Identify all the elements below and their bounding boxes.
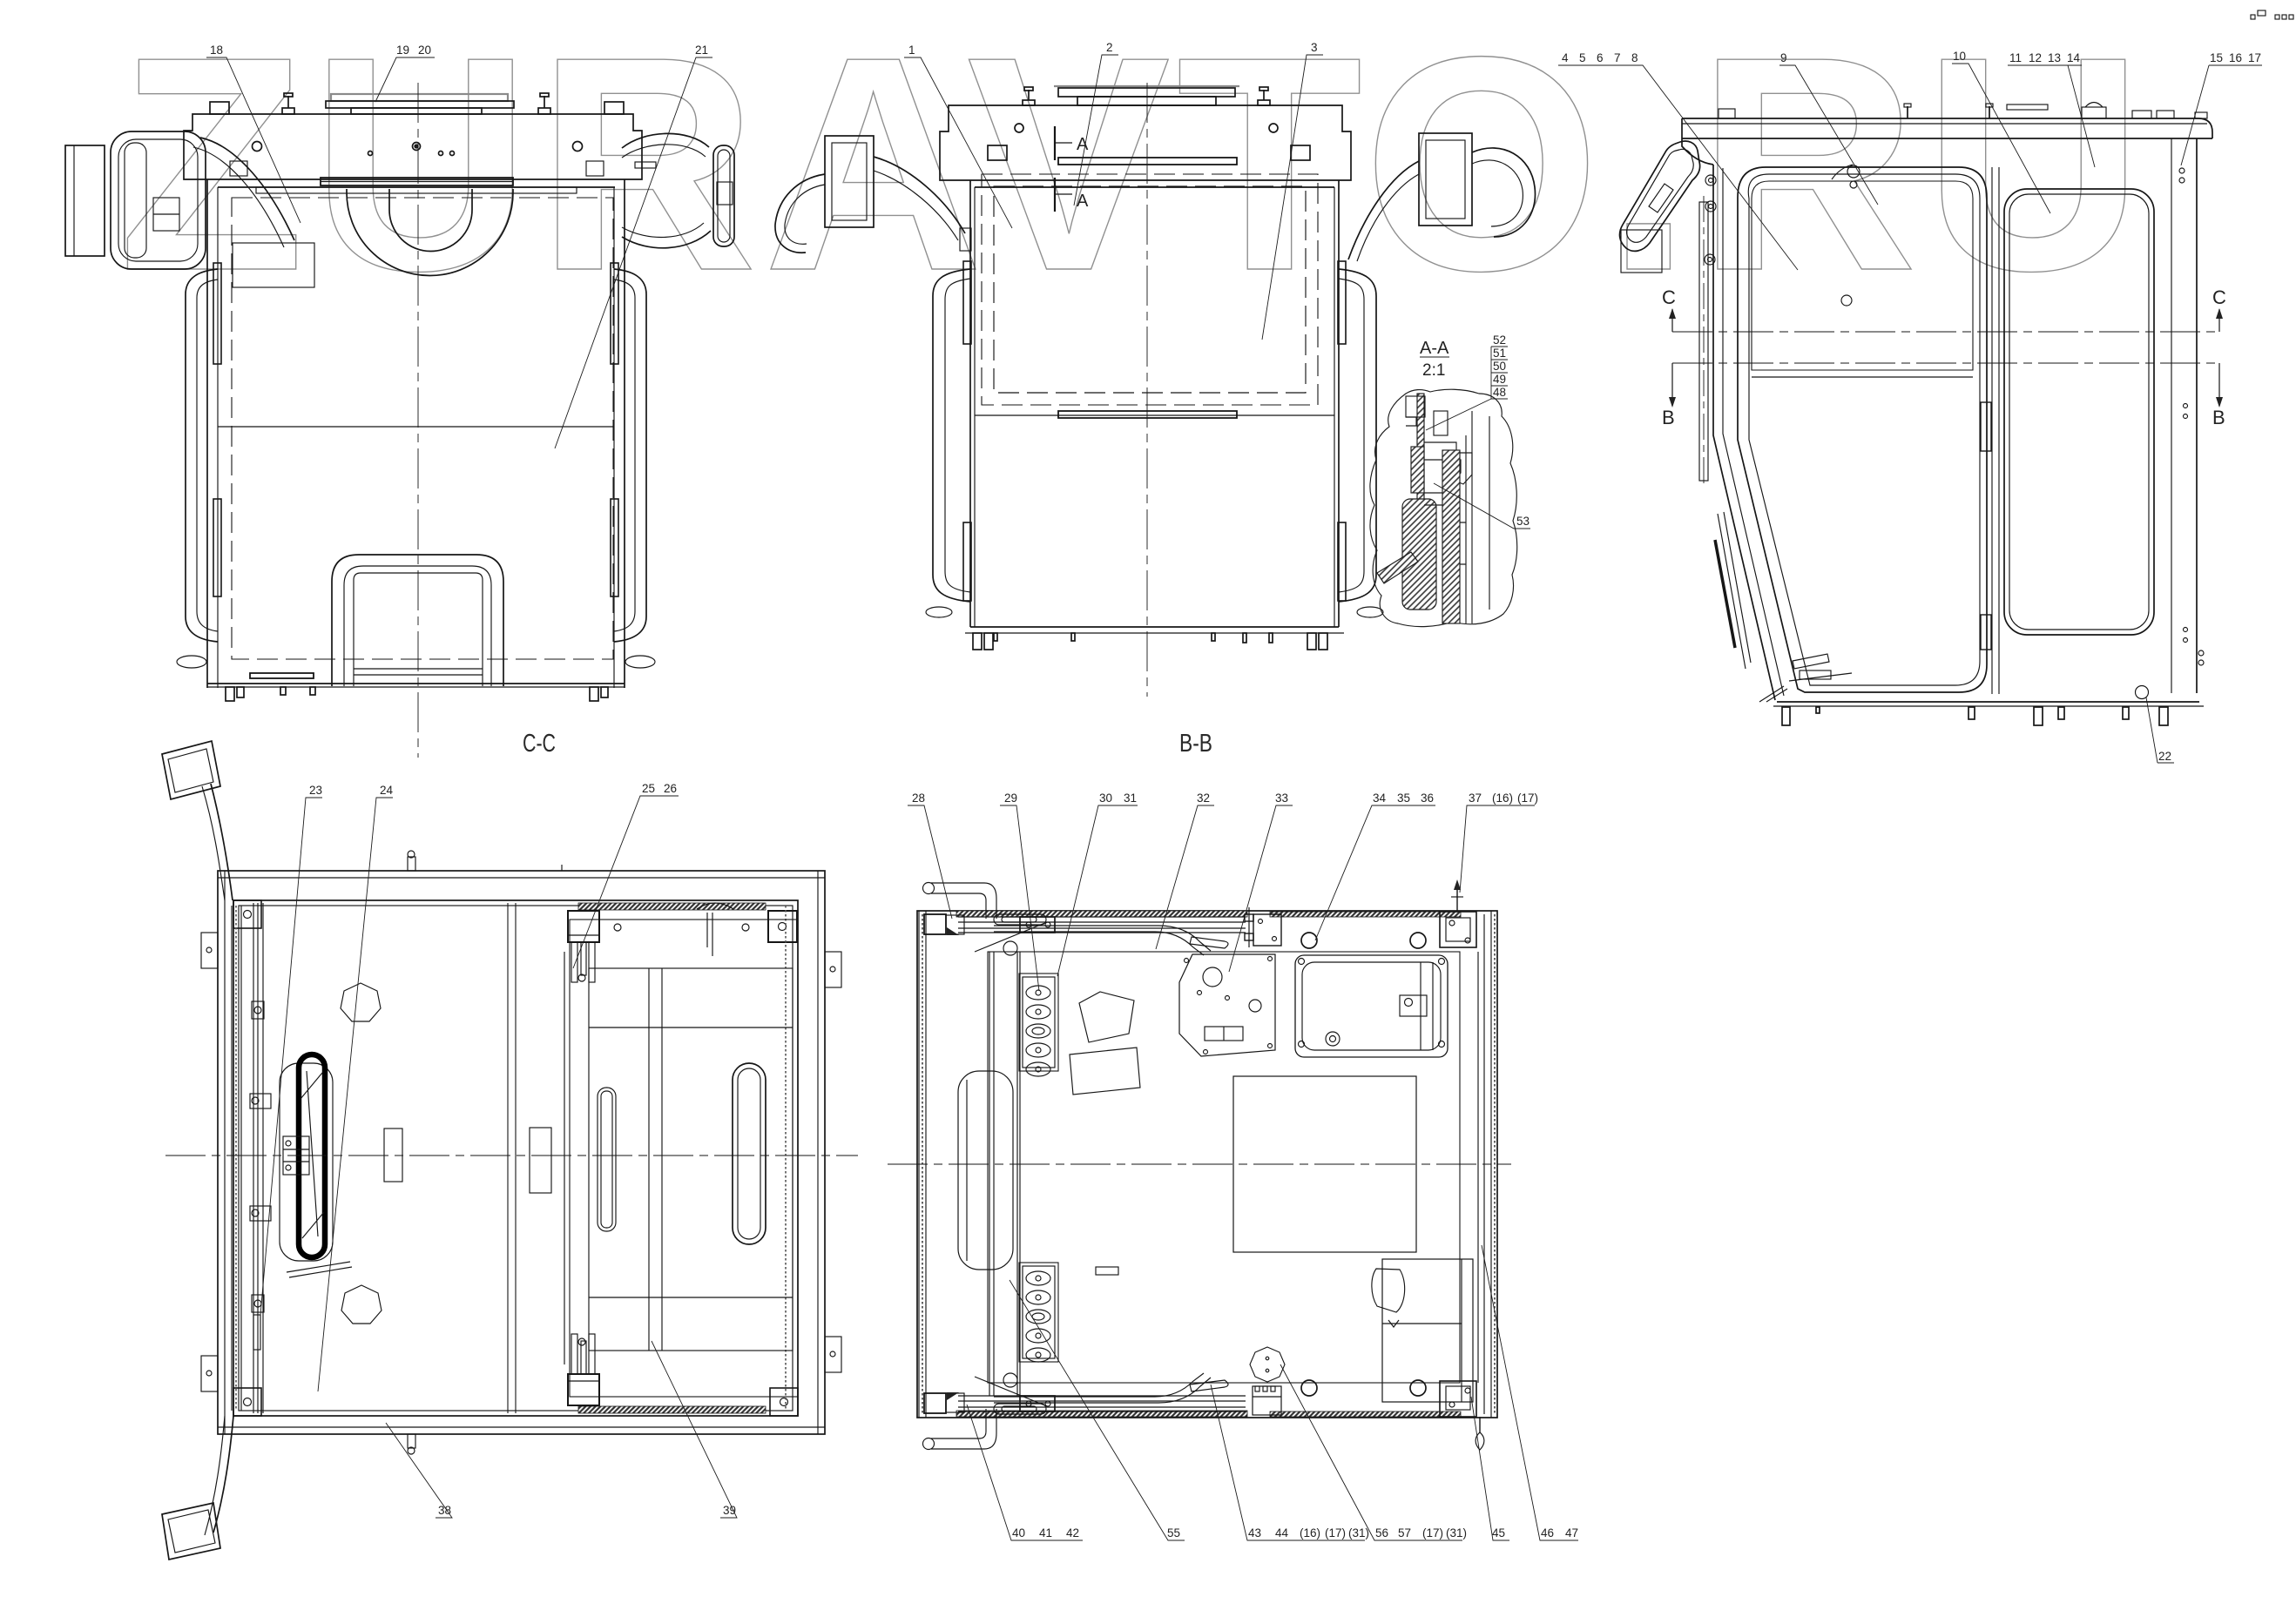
svg-text:(16): (16) — [1492, 792, 1513, 805]
svg-text:33: 33 — [1275, 792, 1288, 805]
svg-text:5: 5 — [1579, 51, 1586, 64]
svg-text:36: 36 — [1421, 792, 1434, 805]
svg-text:4: 4 — [1562, 51, 1569, 64]
svg-text:17: 17 — [2248, 51, 2261, 64]
svg-text:9: 9 — [1780, 51, 1787, 64]
svg-text:20: 20 — [418, 44, 431, 57]
svg-text:B: B — [1662, 407, 1675, 428]
svg-text:8: 8 — [1631, 51, 1638, 64]
svg-text:43: 43 — [1248, 1526, 1261, 1540]
svg-text:53: 53 — [1516, 515, 1530, 528]
svg-text:A: A — [1077, 135, 1089, 154]
svg-text:2: 2 — [1106, 41, 1113, 54]
svg-text:56: 56 — [1375, 1526, 1388, 1540]
svg-text:44: 44 — [1275, 1526, 1289, 1540]
svg-text:50: 50 — [1493, 360, 1506, 373]
svg-text:15: 15 — [2210, 51, 2223, 64]
svg-text:37: 37 — [1469, 792, 1482, 805]
svg-text:16: 16 — [2229, 51, 2242, 64]
svg-text:25: 25 — [642, 782, 655, 795]
svg-text:32: 32 — [1197, 792, 1210, 805]
svg-text:B: B — [2212, 407, 2225, 428]
svg-text:26: 26 — [664, 782, 677, 795]
svg-text:19: 19 — [396, 44, 409, 57]
svg-text:41: 41 — [1039, 1526, 1052, 1540]
svg-text:22: 22 — [2158, 750, 2171, 763]
svg-text:11: 11 — [2009, 51, 2022, 64]
svg-text:(17): (17) — [1325, 1526, 1346, 1540]
svg-text:46: 46 — [1541, 1526, 1554, 1540]
svg-text:2:1: 2:1 — [1422, 361, 1445, 380]
svg-text:35: 35 — [1397, 792, 1410, 805]
svg-text:B-B: B-B — [1179, 730, 1212, 758]
svg-text:48: 48 — [1493, 386, 1506, 399]
svg-text:(17): (17) — [1422, 1526, 1443, 1540]
svg-text:45: 45 — [1492, 1526, 1505, 1540]
svg-text:7: 7 — [1614, 51, 1621, 64]
svg-text:C: C — [2212, 286, 2226, 308]
svg-text:6: 6 — [1597, 51, 1604, 64]
svg-text:57: 57 — [1398, 1526, 1411, 1540]
svg-text:C: C — [1662, 286, 1676, 308]
svg-text:1: 1 — [908, 44, 915, 57]
svg-text:38: 38 — [438, 1504, 451, 1517]
svg-text:55: 55 — [1167, 1526, 1180, 1540]
svg-text:21: 21 — [695, 44, 708, 57]
svg-text:42: 42 — [1066, 1526, 1079, 1540]
svg-text:40: 40 — [1012, 1526, 1025, 1540]
svg-text:A: A — [1077, 192, 1089, 211]
svg-text:51: 51 — [1493, 347, 1506, 360]
svg-text:18: 18 — [210, 44, 223, 57]
svg-text:31: 31 — [1124, 792, 1137, 805]
svg-text:24: 24 — [380, 784, 394, 797]
svg-text:(16): (16) — [1300, 1526, 1320, 1540]
svg-text:(31): (31) — [1446, 1526, 1467, 1540]
svg-text:(31): (31) — [1348, 1526, 1369, 1540]
svg-text:13: 13 — [2048, 51, 2061, 64]
svg-text:A-A: A-A — [1420, 339, 1449, 358]
svg-text:29: 29 — [1004, 792, 1017, 805]
svg-text:3: 3 — [1311, 41, 1318, 54]
svg-text:49: 49 — [1493, 373, 1506, 386]
svg-text:34: 34 — [1373, 792, 1387, 805]
svg-text:14: 14 — [2067, 51, 2081, 64]
svg-text:28: 28 — [912, 792, 925, 805]
svg-text:C-C: C-C — [523, 730, 556, 758]
svg-text:12: 12 — [2029, 51, 2042, 64]
svg-text:23: 23 — [309, 784, 322, 797]
svg-text:39: 39 — [723, 1504, 736, 1517]
svg-text:52: 52 — [1493, 334, 1506, 347]
svg-text:10: 10 — [1953, 50, 1966, 63]
svg-text:(17): (17) — [1517, 792, 1538, 805]
svg-text:47: 47 — [1565, 1526, 1578, 1540]
svg-text:30: 30 — [1099, 792, 1112, 805]
